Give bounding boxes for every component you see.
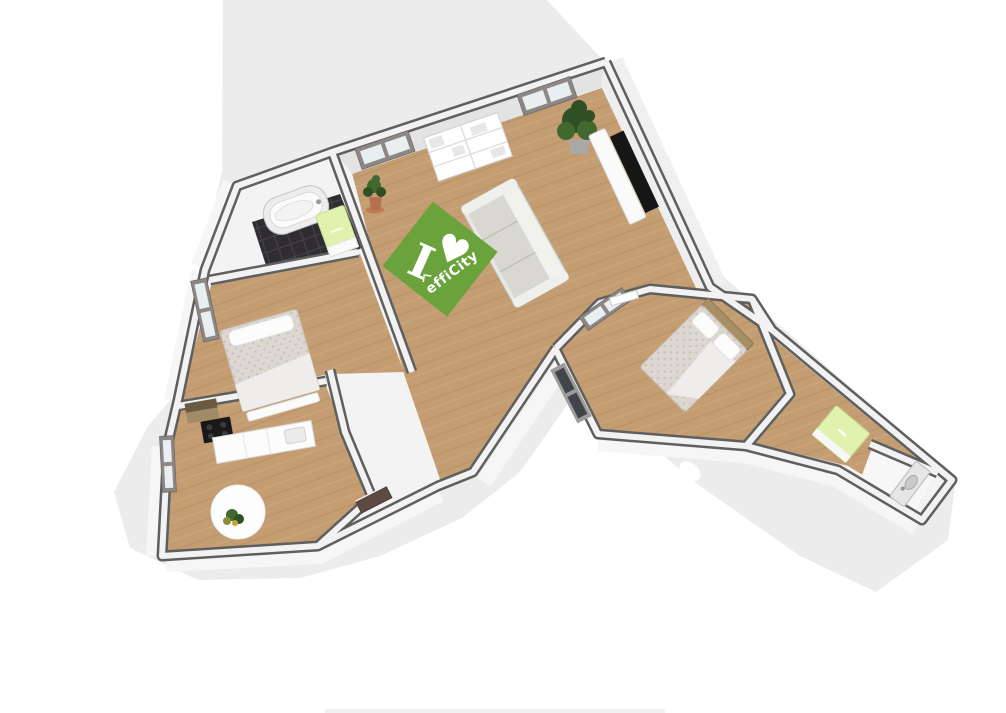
bottom-divider-line <box>325 709 665 713</box>
floorplan-render: I ♥ effiCity <box>0 0 1006 713</box>
window-icon <box>160 436 177 493</box>
round-rug <box>211 485 265 539</box>
floorplan-canvas: I ♥ effiCity <box>0 0 1006 713</box>
